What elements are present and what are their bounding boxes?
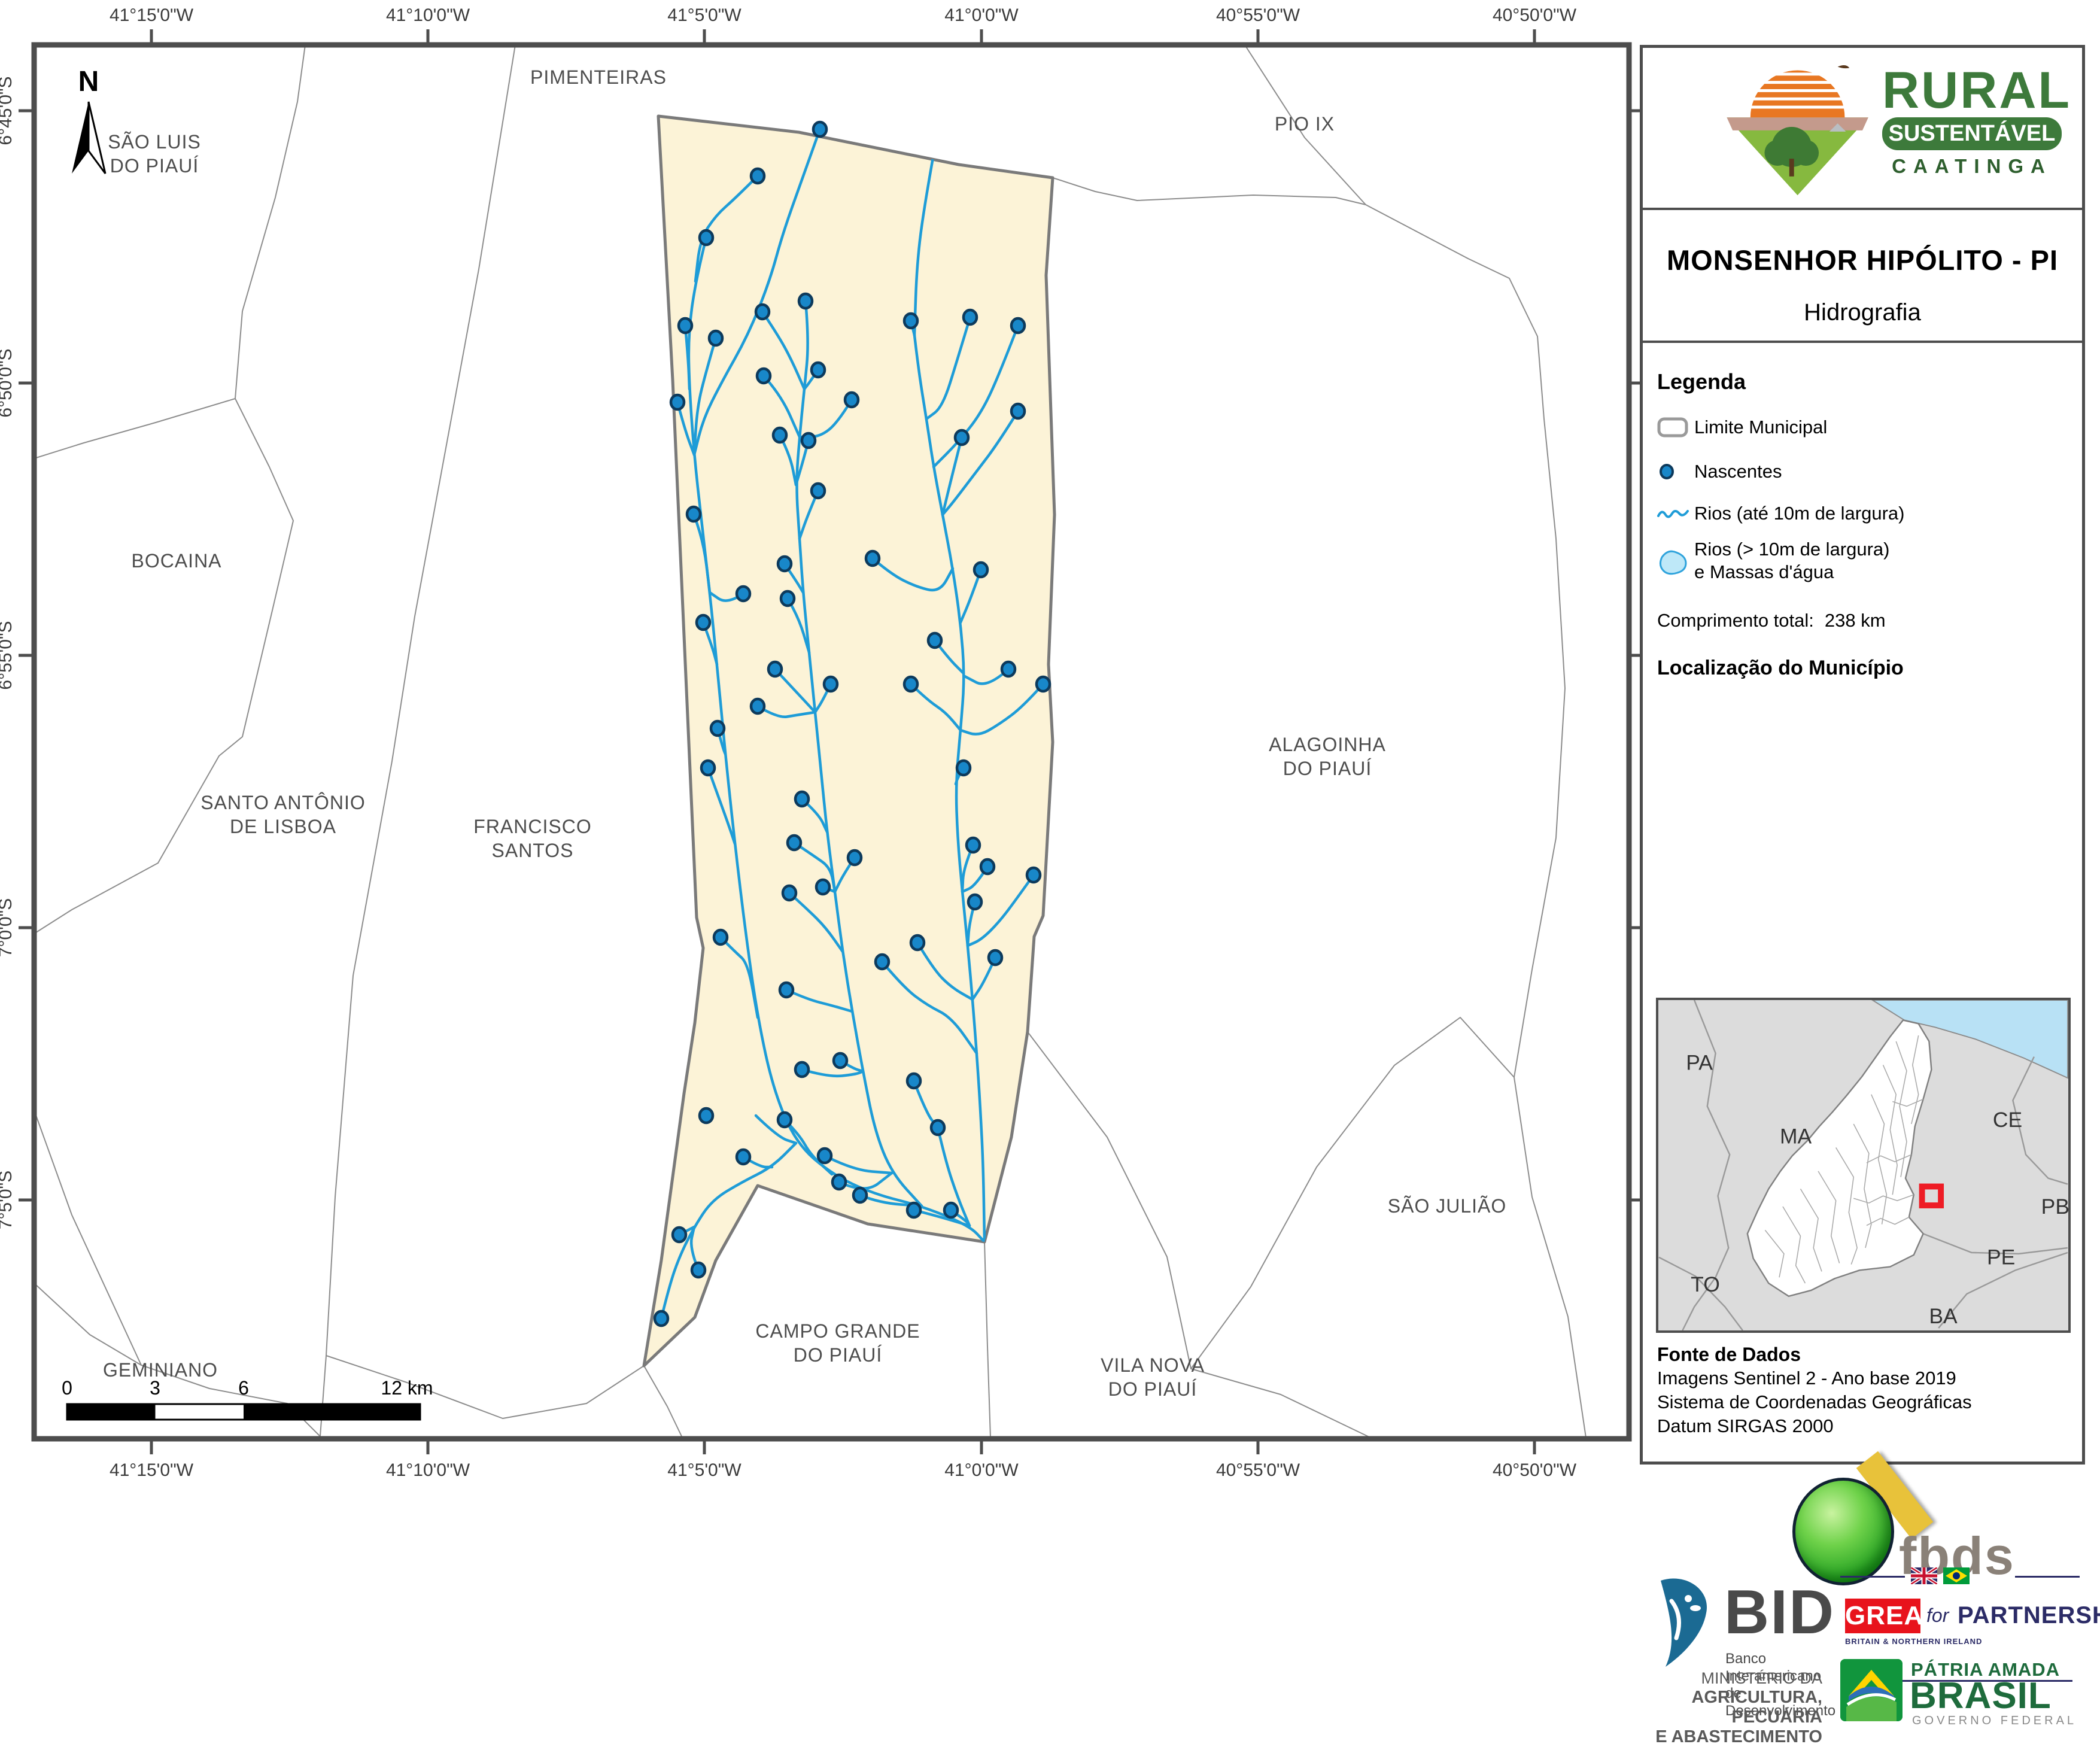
- municipal-limit-icon: [1657, 417, 1694, 438]
- spring-dot: [848, 850, 861, 865]
- longitude-label: 40°55'0"W: [1216, 1460, 1300, 1480]
- latitude-label: 6°55'0"S: [0, 621, 16, 689]
- spring-dot: [989, 950, 1002, 965]
- longitude-label: 40°50'0"W: [1493, 1460, 1577, 1480]
- neighbor-label: PIO IX: [1275, 113, 1335, 135]
- map-title-box: MONSENHOR HIPÓLITO - PI Hidrografia: [1643, 212, 2082, 343]
- spring-dot: [812, 484, 825, 498]
- neighbor-label: PIMENTEIRAS: [530, 66, 667, 88]
- ministerio-line1: MINISTÉRIO DA: [1655, 1669, 1822, 1688]
- scale-label: 3: [150, 1377, 160, 1399]
- longitude-label: 41°10'0"W: [386, 5, 470, 25]
- longitude-label: 41°15'0"W: [110, 1460, 194, 1480]
- spring-dot: [679, 318, 692, 333]
- spring-dot: [931, 1120, 944, 1135]
- boundary-line: [235, 45, 305, 399]
- spring-dot: [1037, 677, 1050, 691]
- spring-dot: [655, 1311, 668, 1326]
- longitude-label: 41°0'0"W: [944, 1460, 1019, 1480]
- spring-dot: [904, 314, 917, 328]
- legend-item-limite[interactable]: Limite Municipal: [1657, 416, 1827, 439]
- legend-item-rios[interactable]: Rios (até 10m de largura): [1657, 502, 1905, 525]
- neighbor-label: GEMINIANO: [103, 1359, 218, 1381]
- spring-dot: [737, 587, 750, 601]
- scale-label: 6: [238, 1377, 249, 1399]
- spring-dot: [757, 369, 770, 383]
- data-source-line1: Imagens Sentinel 2 - Ano base 2019: [1657, 1368, 1956, 1389]
- spring-dot: [700, 230, 713, 245]
- program-logo-box: RURAL SUSTENTÁVEL CAATINGA: [1643, 48, 2082, 210]
- locator-heading: Localização do Município: [1657, 657, 1904, 680]
- spring-dot: [778, 1113, 791, 1127]
- scale-bar: 03612 km: [62, 1377, 433, 1420]
- spring-dot: [768, 662, 782, 676]
- state-label: PE: [1987, 1245, 2015, 1269]
- flag-line-right: [2015, 1576, 2080, 1578]
- legend-label-rios: Rios (até 10m de largura): [1694, 502, 1905, 525]
- longitude-label: 40°55'0"W: [1216, 5, 1300, 25]
- spring-dot: [788, 835, 801, 850]
- longitude-label: 41°5'0"W: [667, 5, 741, 25]
- spring-dot: [955, 430, 968, 445]
- data-source-line3: Datum SIRGAS 2000: [1657, 1415, 1834, 1437]
- spring-dot: [928, 633, 941, 648]
- data-source-line2: Sistema de Coordenadas Geográficas: [1657, 1391, 1972, 1413]
- spring-dot: [834, 1053, 847, 1068]
- spring-dot: [780, 983, 793, 997]
- ministerio-line3: E ABASTECIMENTO: [1655, 1727, 1822, 1747]
- page: SÃO LUISDO PIAUÍPIMENTEIRASPIO IXBOCAINA…: [0, 0, 2100, 1485]
- ministerio-line2: AGRICULTURA, PECUÁRIA: [1655, 1688, 1822, 1727]
- bid-acronym: BID: [1724, 1577, 1835, 1648]
- municipality-layer: [644, 116, 1054, 1366]
- north-label: N: [78, 66, 99, 98]
- spring-dot: [799, 294, 812, 308]
- state-label: MA: [1780, 1125, 1812, 1149]
- spring-dot: [756, 305, 769, 319]
- spring-dot: [1002, 662, 1015, 676]
- boundary-line: [1053, 178, 1586, 1438]
- boundary-line: [1028, 1032, 1370, 1438]
- spring-dot: [795, 1062, 809, 1077]
- logo-sun: [1743, 65, 1853, 117]
- brasil-wordmark: BRASIL: [1910, 1675, 2052, 1717]
- river-line-icon: [1657, 503, 1694, 524]
- legend-label-limite: Limite Municipal: [1694, 416, 1827, 439]
- spring-dot: [697, 615, 710, 630]
- neighbor-label: SÃO LUISDO PIAUÍ: [108, 131, 201, 177]
- state-label: PB: [2041, 1195, 2068, 1219]
- longitude-label: 41°0'0"W: [944, 5, 1019, 25]
- spring-dot: [709, 331, 722, 345]
- logo-word-sustentavel: SUSTENTÁVEL: [1882, 117, 2062, 150]
- spring-dot: [876, 955, 889, 969]
- spring-dot: [687, 507, 700, 521]
- spring-dot: [673, 1228, 686, 1242]
- spring-dot: [904, 677, 917, 691]
- great-wordmark: GREAT: [1845, 1599, 1920, 1633]
- total-length-value: 238 km: [1825, 610, 1886, 631]
- great-for: for: [1926, 1605, 1949, 1627]
- spring-dot: [671, 395, 684, 409]
- neighbor-label: SÃO JULIÃO: [1388, 1195, 1507, 1217]
- state-label: CE: [1993, 1108, 2022, 1132]
- state-label: PA: [1686, 1050, 1713, 1074]
- longitude-label: 41°15'0"W: [110, 5, 194, 25]
- latitude-label: 7°0'0"S: [0, 898, 16, 957]
- uk-flag-icon: [1911, 1567, 1937, 1584]
- neighbor-label: VILA NOVADO PIAUÍ: [1101, 1354, 1205, 1400]
- ministerio-block: MINISTÉRIO DA AGRICULTURA, PECUÁRIA E AB…: [1655, 1669, 1822, 1747]
- spring-dot: [907, 1074, 920, 1088]
- boundary-line: [34, 1110, 320, 1436]
- state-label: BA: [1929, 1304, 1958, 1328]
- legend-label-rios-grandes: Rios (> 10m de largura) e Massas d'água: [1694, 538, 1890, 584]
- page-subtitle: Hidrografia: [1643, 299, 2082, 326]
- spring-dot: [711, 721, 724, 736]
- neighbor-label: SANTO ANTÔNIODE LISBOA: [200, 792, 366, 837]
- spring-dot: [737, 1150, 750, 1164]
- spring-dot: [818, 1149, 831, 1163]
- spring-dot: [968, 895, 981, 909]
- spring-dot-icon: [1657, 461, 1694, 482]
- water-body-icon: [1657, 542, 1694, 580]
- spring-dot: [981, 859, 994, 874]
- legend-item-nascentes[interactable]: Nascentes: [1657, 460, 1782, 483]
- spring-dot: [957, 761, 970, 775]
- brasil-flag-square-icon: [1840, 1659, 1903, 1721]
- page-title: MONSENHOR HIPÓLITO - PI: [1643, 244, 2082, 277]
- longitude-label: 40°50'0"W: [1493, 5, 1577, 25]
- partnership-wordmark: PARTNERSHIP: [1958, 1602, 2100, 1629]
- state-label: TO: [1691, 1272, 1720, 1296]
- boundary-line: [320, 45, 515, 1436]
- neighbor-label: ALAGOINHADO PIAUÍ: [1269, 734, 1386, 779]
- spring-dot: [700, 1108, 713, 1123]
- longitude-label: 41°10'0"W: [386, 1460, 470, 1480]
- scale-label: 0: [62, 1377, 72, 1399]
- spring-dot: [853, 1188, 867, 1202]
- scale-label: 12 km: [381, 1377, 433, 1399]
- spring-dot: [692, 1263, 705, 1277]
- governo-federal-logo: PÁTRIA AMADA BRASIL GOVERNO FEDERAL: [1840, 1659, 2080, 1737]
- panel-content: Legenda Limite Municipal Nascentes Rios …: [1643, 345, 2082, 1462]
- spring-dot: [812, 363, 825, 377]
- latitude-label: 7°5'0"S: [0, 1171, 16, 1229]
- total-length-label: Comprimento total:: [1657, 610, 1814, 631]
- north-arrow-icon: N: [72, 66, 105, 174]
- spring-dot: [795, 792, 809, 806]
- spring-dot: [701, 761, 715, 775]
- boundary-line: [34, 399, 235, 458]
- spring-dot: [824, 677, 837, 691]
- spring-dot: [813, 122, 826, 136]
- spring-dot: [783, 886, 796, 900]
- total-length: Comprimento total:238 km: [1657, 610, 1886, 631]
- spring-dot: [802, 433, 815, 448]
- neighbor-label: CAMPO GRANDEDO PIAUÍ: [755, 1320, 920, 1366]
- logo-word-caatinga: CAATINGA: [1882, 155, 2062, 178]
- spring-dot: [911, 935, 924, 950]
- spring-dot: [967, 838, 980, 852]
- legend-label-nascentes: Nascentes: [1694, 460, 1782, 483]
- spring-dot: [964, 310, 977, 324]
- locator-map[interactable]: PAMACEPBPETOBA: [1656, 998, 2071, 1333]
- latitude-label: 6°45'0"S: [0, 76, 16, 145]
- data-source-heading: Fonte de Dados: [1657, 1344, 1801, 1366]
- spring-dot: [845, 393, 858, 407]
- spring-dot: [751, 699, 764, 713]
- spring-dot: [974, 563, 987, 577]
- spring-dot: [816, 880, 829, 894]
- boundary-line: [984, 1242, 990, 1438]
- spring-dot: [751, 169, 764, 183]
- spring-dot: [781, 591, 794, 606]
- britain-caption: BRITAIN & NORTHERN IRELAND: [1845, 1637, 1982, 1646]
- spring-dot: [714, 930, 727, 944]
- boundary-line: [34, 399, 293, 934]
- boundary-line: [644, 1366, 682, 1438]
- spring-dot: [944, 1203, 958, 1217]
- municipality-polygon[interactable]: [644, 116, 1054, 1366]
- governo-federal: GOVERNO FEDERAL: [1912, 1714, 2077, 1728]
- spring-dot: [832, 1175, 846, 1189]
- side-panel: RURAL SUSTENTÁVEL CAATINGA MONSENHOR HIP…: [1640, 45, 2085, 1465]
- longitude-label: 41°5'0"W: [667, 1460, 741, 1480]
- logo-word-rural: RURAL: [1882, 65, 2074, 116]
- brazil-flag-icon: [1943, 1567, 1970, 1584]
- spring-dot: [778, 557, 791, 571]
- boundary-line: [1191, 1017, 1514, 1369]
- flag-line-left: [1840, 1576, 1905, 1578]
- spring-dot: [1011, 404, 1025, 418]
- neighbor-label: FRANCISCOSANTOS: [473, 816, 591, 861]
- boundary-line: [34, 1283, 141, 1365]
- spring-dot: [1027, 868, 1040, 882]
- latitude-label: 6°50'0"S: [0, 348, 16, 417]
- legend-heading: Legenda: [1657, 369, 1746, 394]
- spring-dot: [866, 551, 879, 566]
- spring-dot: [907, 1203, 920, 1217]
- spring-dot: [1011, 318, 1025, 333]
- neighbor-label: BOCAINA: [131, 550, 221, 572]
- bid-icon: [1654, 1577, 1719, 1673]
- spring-dot: [773, 428, 786, 442]
- legend-item-rios-grandes[interactable]: Rios (> 10m de largura) e Massas d'água: [1657, 538, 1890, 584]
